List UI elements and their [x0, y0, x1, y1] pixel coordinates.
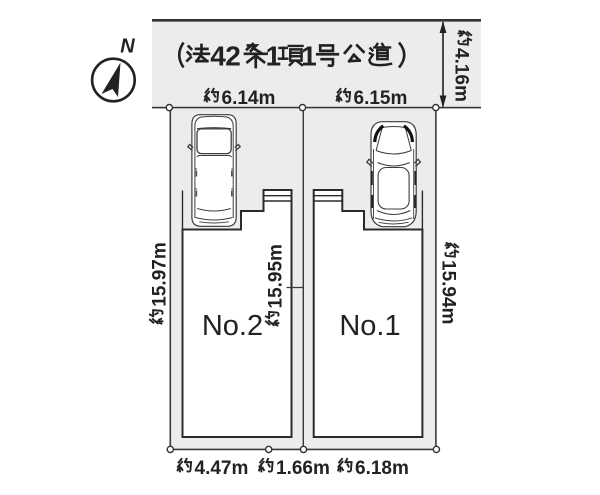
svg-text:4.47m: 4.47m: [195, 458, 249, 479]
svg-text:4: 4: [210, 41, 226, 72]
svg-text:6.18m: 6.18m: [355, 458, 409, 479]
svg-text:2: 2: [225, 41, 241, 72]
svg-text:1.66m: 1.66m: [276, 458, 330, 479]
svg-text:N: N: [120, 36, 135, 58]
svg-text:1: 1: [301, 41, 317, 72]
svg-text:No.2: No.2: [202, 310, 263, 342]
svg-text:4.16m: 4.16m: [451, 48, 472, 102]
svg-text:15.95m: 15.95m: [266, 244, 287, 308]
svg-text:6.15m: 6.15m: [354, 88, 408, 109]
svg-text:15.94m: 15.94m: [438, 260, 459, 324]
svg-text:1: 1: [266, 41, 282, 72]
svg-text:6.14m: 6.14m: [222, 88, 276, 109]
svg-text:15.97m: 15.97m: [150, 242, 171, 306]
svg-text:No.1: No.1: [339, 310, 400, 342]
